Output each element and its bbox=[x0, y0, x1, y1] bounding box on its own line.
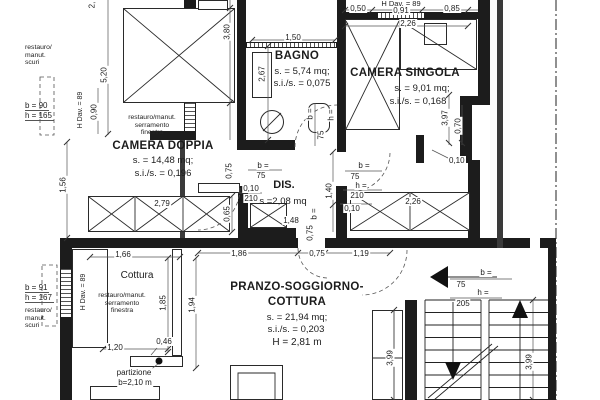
door-bagno-b: b = bbox=[306, 107, 315, 120]
room-title-bagno: BAGNO bbox=[275, 50, 319, 62]
room-title-dis: DIS. bbox=[273, 179, 294, 191]
dim-0-91: 0,91 bbox=[392, 6, 410, 15]
dim-1-48: 1,48 bbox=[282, 216, 300, 225]
room-area-bagno: s. = 5,74 mq; bbox=[274, 66, 329, 77]
dim-0-50: 0,50 bbox=[349, 4, 367, 13]
door-singola-h: h = bbox=[354, 181, 367, 190]
room-title-pranzo-line2: COTTURA bbox=[268, 296, 326, 308]
room-ratio-camera-doppia: s.i./s. = 0,196 bbox=[135, 168, 192, 179]
note-line: restauro/manut. bbox=[128, 114, 176, 122]
door-doppia-height: 210 bbox=[243, 194, 258, 203]
door-doppia-b: b = bbox=[256, 161, 269, 170]
room-ratio-bagno: s.i./s. = 0,075 bbox=[274, 78, 331, 89]
dim-0-10-wall: 0,10 bbox=[448, 156, 466, 165]
door-stairs-bv: 75 bbox=[456, 280, 467, 289]
window2-height-label: h = 167 bbox=[25, 293, 54, 303]
window2-sill-label: H Dav. = 89 bbox=[80, 273, 88, 312]
dim-1-86: 1,86 bbox=[230, 249, 248, 258]
note-line: manut. bbox=[25, 315, 52, 323]
dim-3-80: 3,80 bbox=[223, 23, 232, 41]
note-partizione-size: b=2,10 m bbox=[117, 378, 153, 387]
note-line: serramento bbox=[128, 122, 176, 130]
dim-1-85: 1,85 bbox=[159, 294, 168, 312]
dim-1-94: 1,94 bbox=[188, 296, 197, 314]
room-ratio-pranzo: s.i./s. = 0,203 bbox=[268, 324, 325, 335]
note-line: scuri bbox=[25, 322, 52, 330]
room-height-pranzo: H = 2,81 m bbox=[272, 337, 321, 348]
room-area-camera-doppia: s. = 14,48 mq; bbox=[133, 155, 193, 166]
note-line: serramento bbox=[98, 300, 146, 308]
door-doppia-width: 0,75 bbox=[225, 162, 234, 180]
dim-2-26-wardrobe: 2,26 bbox=[404, 197, 422, 206]
room-area-dis: s.=2,08 mq bbox=[259, 196, 306, 207]
window2-width-label: b = 91 bbox=[25, 283, 49, 293]
room-title-camera-doppia: CAMERA DOPPIA bbox=[112, 140, 213, 152]
door-pranzo-width: 0,75 bbox=[306, 224, 315, 242]
door-bagno-h: h = bbox=[327, 108, 336, 121]
door-singola-b: b = bbox=[357, 161, 370, 170]
dim-0-46: 0,46 bbox=[155, 337, 173, 346]
note-line: manut. bbox=[25, 52, 52, 60]
note-scuri-top: restauro/ manut. scuri bbox=[25, 44, 52, 67]
note-line: scuri bbox=[25, 59, 52, 67]
dim-1-56: 1,56 bbox=[59, 176, 68, 194]
note-line: restauro/ bbox=[25, 44, 52, 52]
note-line: restauro/manut. bbox=[98, 292, 146, 300]
note-line: finestra bbox=[98, 307, 146, 315]
door-singola-hv: 210 bbox=[349, 191, 364, 200]
window1-width-label: b = 90 bbox=[25, 101, 49, 111]
door-singola-thickness: 0,10 bbox=[343, 204, 361, 213]
door-stairs-b: b = bbox=[479, 268, 492, 277]
dim-0-75-wall: 0,75 bbox=[308, 249, 326, 258]
dim-0-70: 0,70 bbox=[454, 117, 463, 135]
note-line: restauro/ bbox=[25, 307, 52, 315]
note-finestra-top: restauro/manut. serramento finestra bbox=[128, 114, 176, 137]
note-partizione: partizione bbox=[116, 368, 153, 377]
window1-sill-label: H Dav. = 89 bbox=[77, 91, 85, 130]
dim-0-65: 0,65 bbox=[223, 205, 232, 223]
window1-width-dim: 0,90 bbox=[90, 103, 99, 121]
dim-1-66: 1,66 bbox=[114, 250, 132, 259]
window1-height-label: h = 165 bbox=[25, 111, 54, 121]
dim-3-99-pranzo: 3,99 bbox=[386, 349, 395, 367]
note-scuri-bottom: restauro/ manut. scuri bbox=[25, 307, 52, 330]
door-pranzo-b: b = bbox=[310, 207, 319, 220]
dim-1-20: 1,20 bbox=[106, 343, 124, 352]
dim-0-85: 0,85 bbox=[443, 4, 461, 13]
room-area-pranzo: s. = 21,94 mq; bbox=[267, 312, 327, 323]
door-doppia-thickness: 0,10 bbox=[242, 184, 260, 193]
stair-down-arrow bbox=[445, 362, 461, 380]
dim-5-20: 5,20 bbox=[100, 66, 109, 84]
room-ratio-camera-singola: s.i./s. = 0,168 bbox=[390, 96, 447, 107]
dim-2-79-wardrobe: 2,79 bbox=[153, 199, 171, 208]
floor-plan: BAGNO s. = 5,74 mq; s.i./s. = 0,075 CAME… bbox=[0, 0, 600, 400]
note-finestra-bottom: restauro/manut. serramento finestra bbox=[98, 292, 146, 315]
dim-cut-top: 2, bbox=[88, 1, 97, 10]
partition-reference-dot bbox=[156, 358, 163, 365]
room-area-camera-singola: s. = 9,01 mq; bbox=[394, 83, 449, 94]
door-stairs-h: h = bbox=[476, 288, 489, 297]
dim-1-50: 1,50 bbox=[284, 33, 302, 42]
entry-arrow bbox=[430, 266, 448, 288]
dim-3-97: 3,97 bbox=[441, 109, 450, 127]
dim-2-67: 2,67 bbox=[258, 65, 267, 83]
door-bagno-bv: 75 bbox=[317, 130, 326, 141]
note-line: finestra bbox=[128, 129, 176, 137]
room-title-camera-singola: CAMERA SINGOLA bbox=[350, 67, 460, 79]
door-stairs-hv: 205 bbox=[455, 299, 470, 308]
room-title-cottura: Cottura bbox=[121, 270, 154, 281]
room-title-pranzo-line1: PRANZO-SOGGIORNO- bbox=[230, 281, 364, 293]
dim-1-19: 1,19 bbox=[352, 249, 370, 258]
door-doppia-bv: 75 bbox=[256, 171, 267, 180]
door-singola-bv: 75 bbox=[350, 172, 361, 181]
dim-2-26-top: 2,26 bbox=[399, 19, 417, 28]
stair-up-arrow bbox=[512, 300, 528, 318]
stair-break-line bbox=[428, 344, 498, 400]
dim-3-99-stairs: 3,99 bbox=[525, 353, 534, 371]
door-singola-offset: 1,40 bbox=[325, 182, 334, 200]
